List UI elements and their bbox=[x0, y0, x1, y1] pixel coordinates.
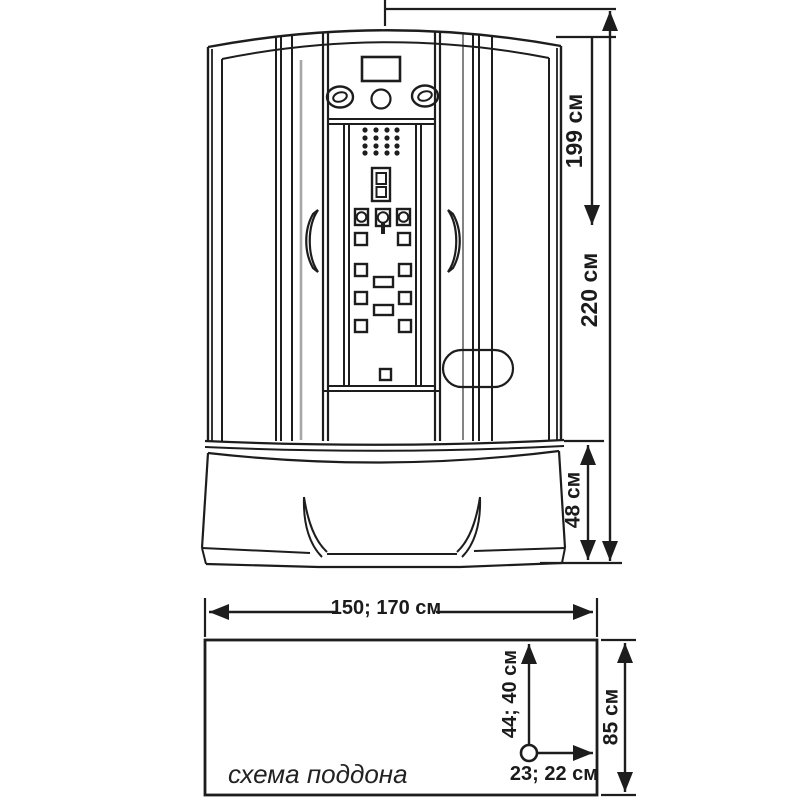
drain-circle bbox=[521, 745, 537, 761]
technical-drawing-page: 220 см 199 см 48 см 150; 170 см 85 см bbox=[0, 0, 800, 800]
dim-label-cabin-height: 199 см bbox=[561, 94, 587, 169]
dim-label-base-height: 48 см bbox=[562, 472, 585, 528]
dim-label-drain-vertical-offset: 44; 40 см bbox=[499, 650, 521, 738]
ceiling-light-icon bbox=[372, 90, 391, 109]
function-buttons bbox=[355, 233, 411, 380]
pan-scheme-caption: схема поддона bbox=[228, 759, 408, 789]
main-switch bbox=[372, 168, 390, 201]
vent-grille-dots bbox=[362, 127, 399, 155]
dim-label-pan-width: 150; 170 см bbox=[331, 597, 441, 619]
shower-cabin-dimension-diagram: 220 см 199 см 48 см 150; 170 см 85 см bbox=[0, 0, 800, 800]
base-tray bbox=[202, 440, 565, 567]
cabin-roof-arc bbox=[208, 30, 561, 59]
control-column bbox=[323, 31, 440, 441]
handle-right bbox=[448, 210, 460, 272]
control-display bbox=[362, 57, 400, 81]
dim-label-pan-depth: 85 см bbox=[600, 689, 623, 745]
base-apron-cutout-left bbox=[304, 497, 327, 557]
dimension-cabin-height: 199 см bbox=[556, 37, 616, 225]
dim-label-drain-horizontal-offset: 23; 22 см bbox=[510, 763, 598, 785]
dimension-pan-depth: 85 см bbox=[600, 640, 637, 795]
dim-label-total-height: 220 см bbox=[576, 253, 602, 328]
handle-left bbox=[306, 210, 318, 272]
dimension-pan-width: 150; 170 см bbox=[205, 596, 597, 637]
speaker-left-icon bbox=[327, 87, 353, 108]
shower-cabin-front-view bbox=[202, 30, 565, 567]
base-apron-cutout-right bbox=[457, 497, 480, 557]
drain-position: 44; 40 см 23; 22 см bbox=[499, 644, 598, 785]
pan-scheme: 150; 170 см 85 см 44; 40 см 23; 22 см сх… bbox=[205, 596, 636, 795]
mixer-knobs bbox=[355, 209, 410, 234]
